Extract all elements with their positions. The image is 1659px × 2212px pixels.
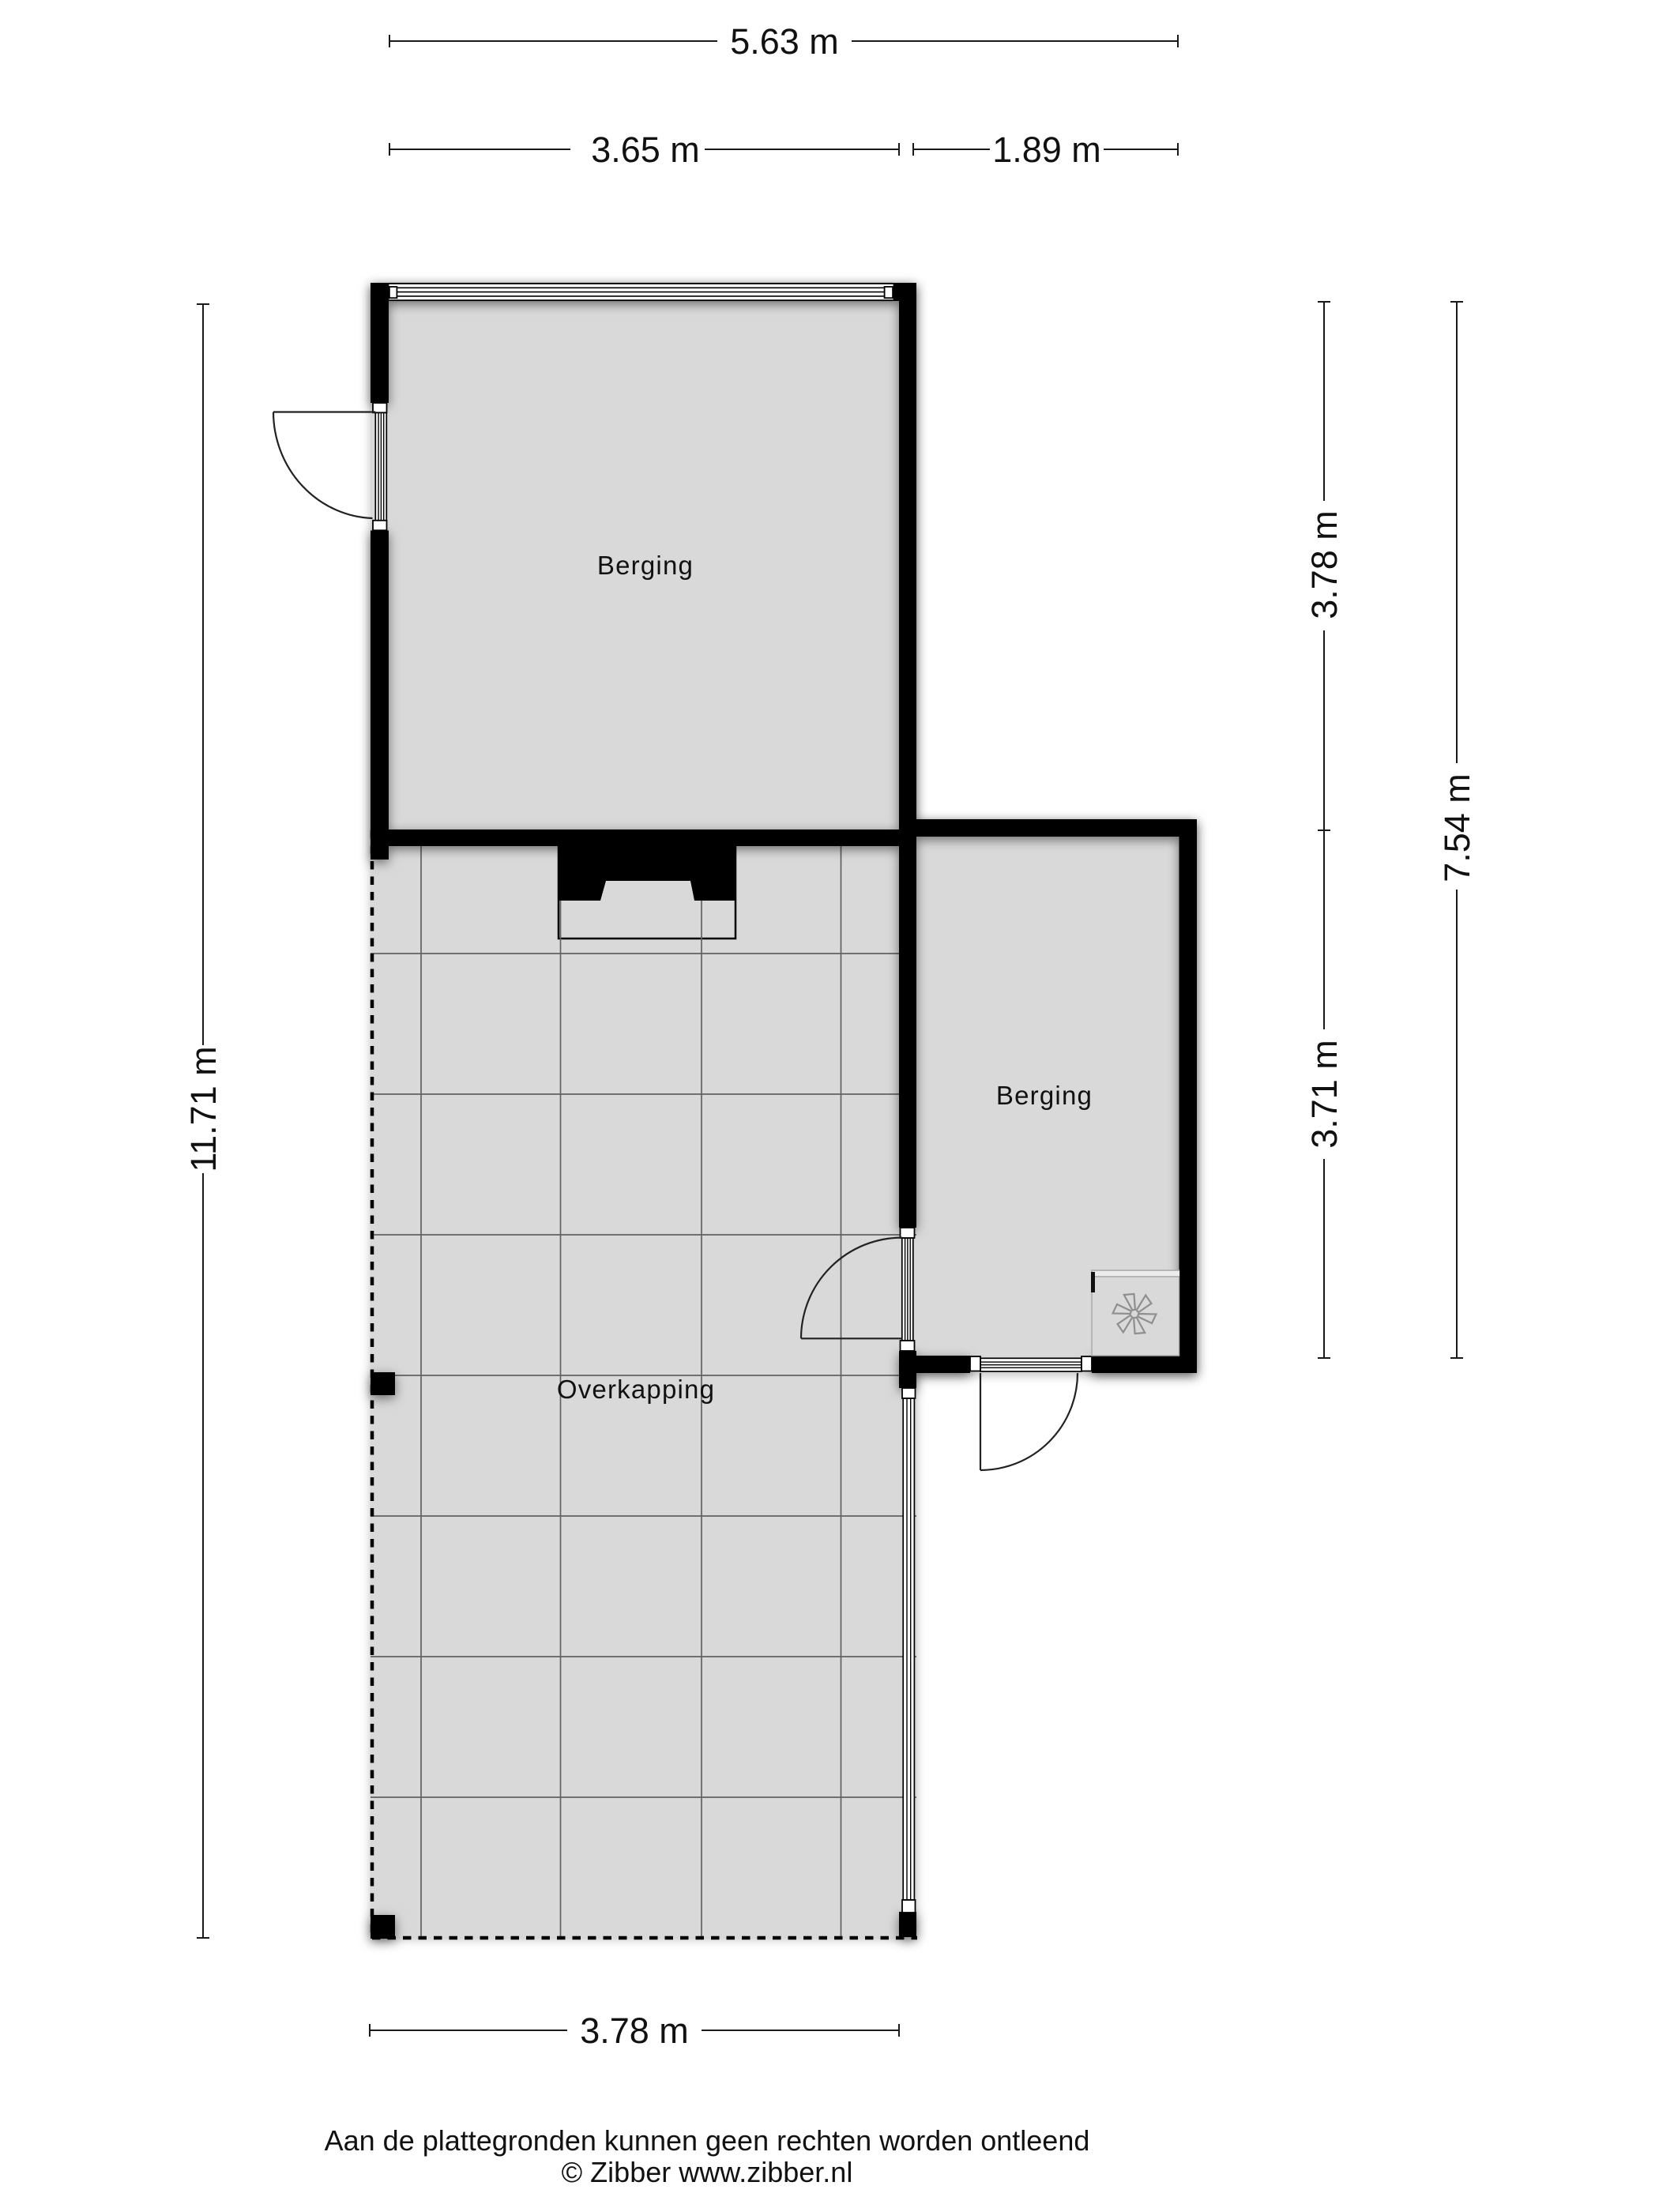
svg-text:11.71 m: 11.71 m <box>183 1046 224 1172</box>
svg-text:© Zibber www.zibber.nl: © Zibber www.zibber.nl <box>562 2156 853 2188</box>
svg-text:Berging: Berging <box>996 1081 1093 1110</box>
svg-text:7.54 m: 7.54 m <box>1437 773 1477 882</box>
svg-text:3.65 m: 3.65 m <box>591 130 700 170</box>
svg-text:3.78 m: 3.78 m <box>1304 510 1345 619</box>
svg-text:1.89 m: 1.89 m <box>992 130 1101 170</box>
svg-text:3.71 m: 3.71 m <box>1304 1040 1345 1149</box>
svg-text:3.78 m: 3.78 m <box>580 2011 689 2051</box>
svg-text:Aan de plattegronden kunnen ge: Aan de plattegronden kunnen geen rechten… <box>325 2124 1090 2157</box>
svg-text:Berging: Berging <box>597 551 694 580</box>
svg-text:Overkapping: Overkapping <box>557 1375 715 1404</box>
svg-text:5.63 m: 5.63 m <box>730 21 839 62</box>
